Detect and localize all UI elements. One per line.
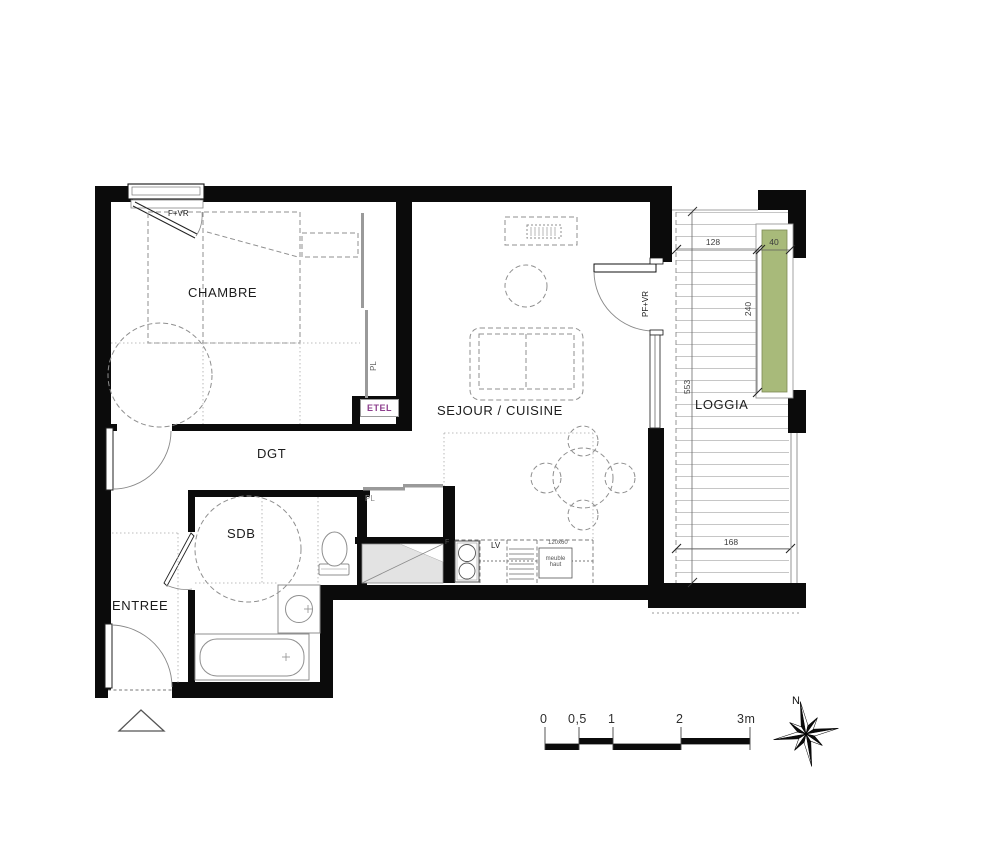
dim-553: 553 [683,380,692,394]
dim-168: 168 [720,538,742,547]
cooktop [455,541,479,582]
bed [148,212,358,343]
floorplan-drawing [0,0,1000,857]
scale-label-05: 0,5 [568,712,587,726]
dishwasher-rack [509,549,534,579]
room-label-sdb: SDB [227,527,256,540]
door-label-pfvr: PF+VR [642,291,650,317]
compass-rose-icon [768,696,844,772]
scale-bar [545,727,750,750]
closet-label-pl-hallway: PL [365,495,375,503]
room-label-entree: ENTREE [112,599,168,612]
kitchen-counter [455,540,593,583]
dim-240: 240 [744,302,753,316]
entrance-marker-icon [119,710,164,731]
bathroom-door [164,533,194,590]
etel-label: ETEL [360,399,399,417]
room-label-chambre: CHAMBRE [188,286,257,299]
chambre-door [106,428,171,490]
dining-table [531,426,635,530]
oven-label: F [445,539,449,546]
room-label-sejour-cuisine: SEJOUR / CUISINE [437,404,563,417]
room-label-loggia: LOGGIA [695,398,748,411]
construction-lines [111,343,593,683]
side-table [505,265,547,307]
toilet [319,532,349,575]
floorplan-canvas: CHAMBRE SEJOUR / CUISINE DGT SDB ENTREE … [0,0,1000,857]
scale-label-1: 1 [608,712,615,726]
radiator [505,217,577,245]
technical-shaft [362,544,443,583]
scale-label-3m: 3m [737,712,755,726]
scale-label-0: 0 [540,712,547,726]
loggia-door [594,258,663,335]
scale-label-2: 2 [676,712,683,726]
dim-40: 40 [764,238,784,247]
hallway-closet-sliding-doors [363,484,443,491]
dishwasher-label: LV [491,542,500,550]
chambre-window [128,184,204,238]
window-label-fvr: F+VR [168,210,189,218]
counter-size-label: 120x60 [548,540,568,546]
turning-circle-chambre [108,323,212,427]
closet-label-pl-chambre: PL [370,361,378,371]
dim-128: 128 [703,238,723,247]
washbasin [278,585,320,633]
chambre-closet-sliding-doors [361,213,368,398]
wall-unit-label: meuble haut [539,556,572,568]
north-label: N [792,695,800,707]
sejour-window [650,335,660,428]
entry-door [105,624,172,690]
radiator-fins [531,227,555,236]
walls [95,186,806,698]
bathtub [195,634,309,680]
sofa [470,328,583,400]
room-label-dgt: DGT [257,447,286,460]
loggia-railing [791,433,797,583]
